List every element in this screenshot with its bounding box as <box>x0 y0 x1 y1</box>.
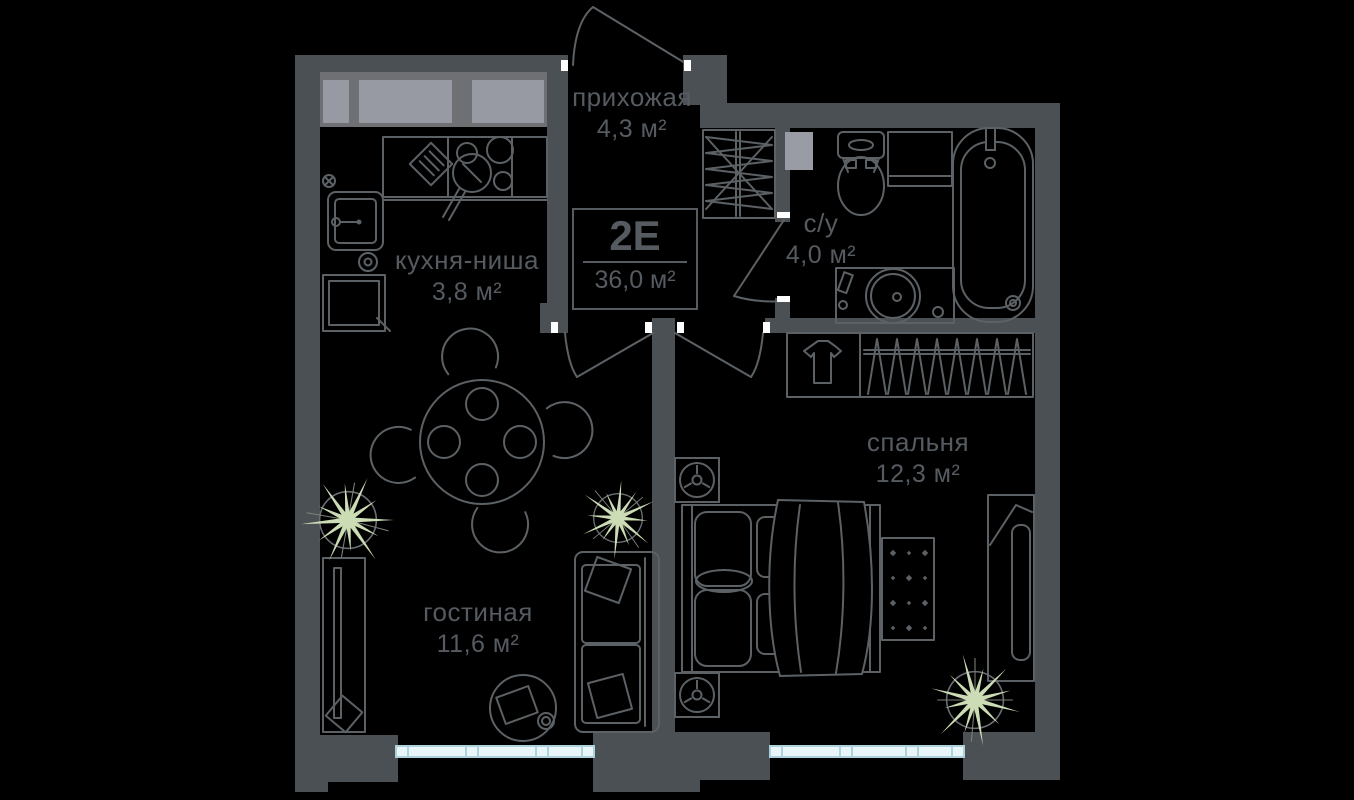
room-label-bathroom: с/у 4,0 м² <box>786 208 856 270</box>
cutting-board-icon <box>410 143 452 185</box>
washbasin-counter <box>836 268 954 323</box>
bathtub <box>953 128 1033 322</box>
room-name: с/у <box>786 208 856 238</box>
wall-partition <box>652 318 675 733</box>
tv-console <box>323 558 365 732</box>
bath-vanity <box>888 132 952 186</box>
bed <box>682 500 880 676</box>
wall-kitchen-hall <box>547 72 568 333</box>
wall-bath-top <box>700 103 1060 128</box>
chair <box>438 325 499 375</box>
room-label-kitchen: кухня-ниша 3,8 м² <box>395 245 539 307</box>
kitchen-vent-icon <box>323 175 335 187</box>
hangers-icon <box>868 339 1026 394</box>
fridge <box>323 275 390 331</box>
kitchen-window <box>320 72 547 127</box>
wall-left <box>295 55 320 782</box>
wall-bottom-center <box>593 732 770 780</box>
kitchen-drain-inner <box>365 259 372 266</box>
bedside-rug <box>882 538 934 640</box>
wall-bottom-center-step <box>593 780 700 792</box>
unit-divider <box>583 261 687 263</box>
room-label-hallway: прихожая 4,3 м² <box>572 82 692 144</box>
vent-icon-top <box>675 458 719 502</box>
lounge-chair <box>988 495 1034 681</box>
window-bedroom <box>770 746 964 757</box>
toilet <box>838 132 884 215</box>
bathroom-door <box>734 220 784 301</box>
floorplan: прихожая 4,3 м² кухня-ниша 3,8 м² с/у 4,… <box>0 0 1354 800</box>
room-label-bedroom: спальня 12,3 м² <box>867 427 969 489</box>
stove-icon <box>443 137 513 220</box>
rug-side-table <box>490 675 556 741</box>
room-name: кухня-ниша <box>395 245 539 275</box>
wall-bottom-left-step <box>295 782 328 792</box>
room-name: гостиная <box>423 597 533 627</box>
sofa <box>575 552 659 732</box>
wardrobe <box>787 333 1033 397</box>
wall-top-kitchen <box>295 55 568 72</box>
chair <box>546 398 596 459</box>
chair <box>368 426 415 485</box>
entrance-door <box>573 7 685 65</box>
wall-bottom-right <box>963 732 1058 780</box>
kitchen-counter <box>383 137 547 220</box>
room-area: 12,3 м² <box>867 459 969 489</box>
wall-right <box>1035 126 1060 780</box>
room-area: 4,0 м² <box>786 240 856 270</box>
room-area: 4,3 м² <box>572 114 692 144</box>
room-name: спальня <box>867 427 969 457</box>
bedroom-door <box>675 333 763 377</box>
kitchen-drain <box>359 253 377 271</box>
unit-total-area: 36,0 м² <box>594 266 675 294</box>
hall-closet <box>703 130 775 218</box>
room-area: 11,6 м² <box>423 629 533 659</box>
unit-type-label: 2Е <box>609 213 660 259</box>
dining-set <box>368 325 596 555</box>
chair <box>470 508 529 555</box>
kitchen-sink <box>328 192 383 250</box>
unit-info-box: 2Е 36,0 м² <box>572 208 698 310</box>
room-name: прихожая <box>572 82 692 112</box>
living-room-door <box>565 333 653 377</box>
tshirt-icon <box>804 341 841 383</box>
shaft <box>785 132 813 170</box>
vent-icon-bottom <box>675 673 719 717</box>
wall-bottom-left <box>295 735 398 782</box>
room-area: 3,8 м² <box>395 277 539 307</box>
window-living <box>396 746 594 757</box>
room-label-living: гостиная 11,6 м² <box>423 597 533 659</box>
